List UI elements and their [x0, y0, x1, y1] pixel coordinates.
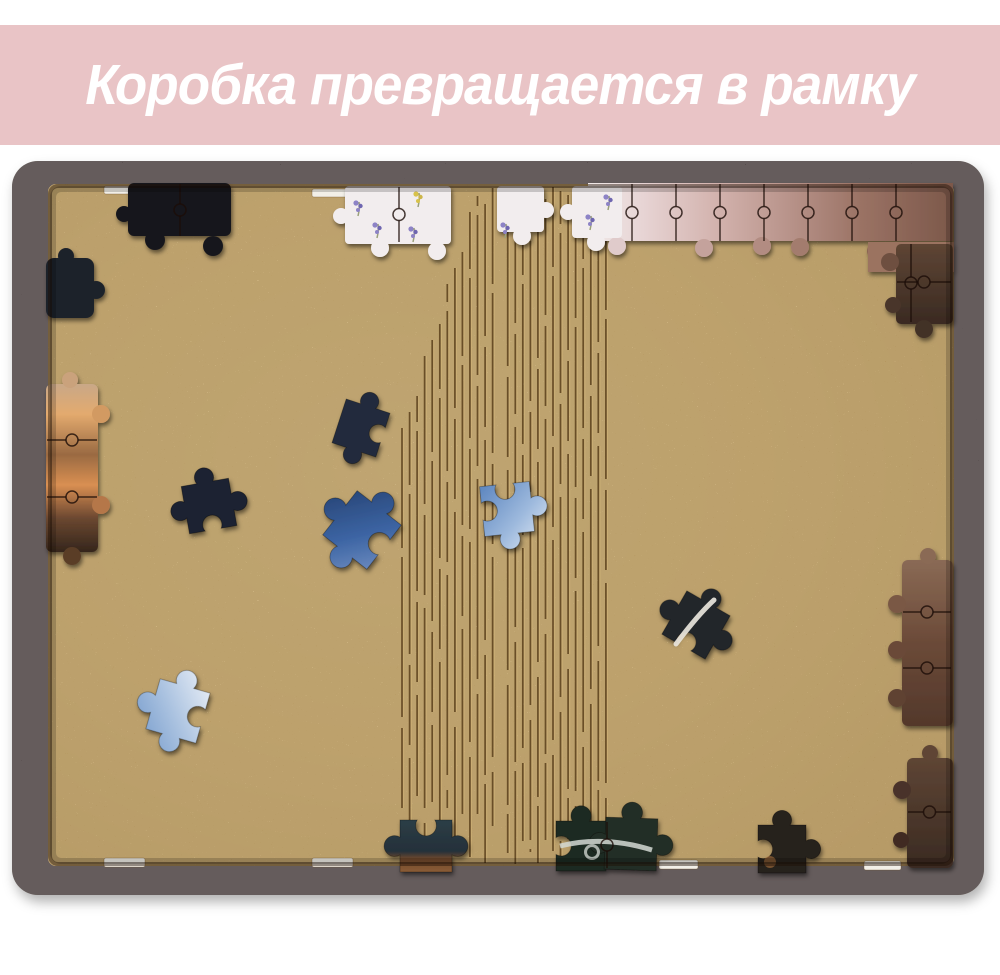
- product-image-page: { "banner": { "text": "Коробка превращае…: [0, 0, 1000, 975]
- puzzle-frame-photo: [0, 0, 1000, 975]
- product-photo: [0, 0, 1000, 975]
